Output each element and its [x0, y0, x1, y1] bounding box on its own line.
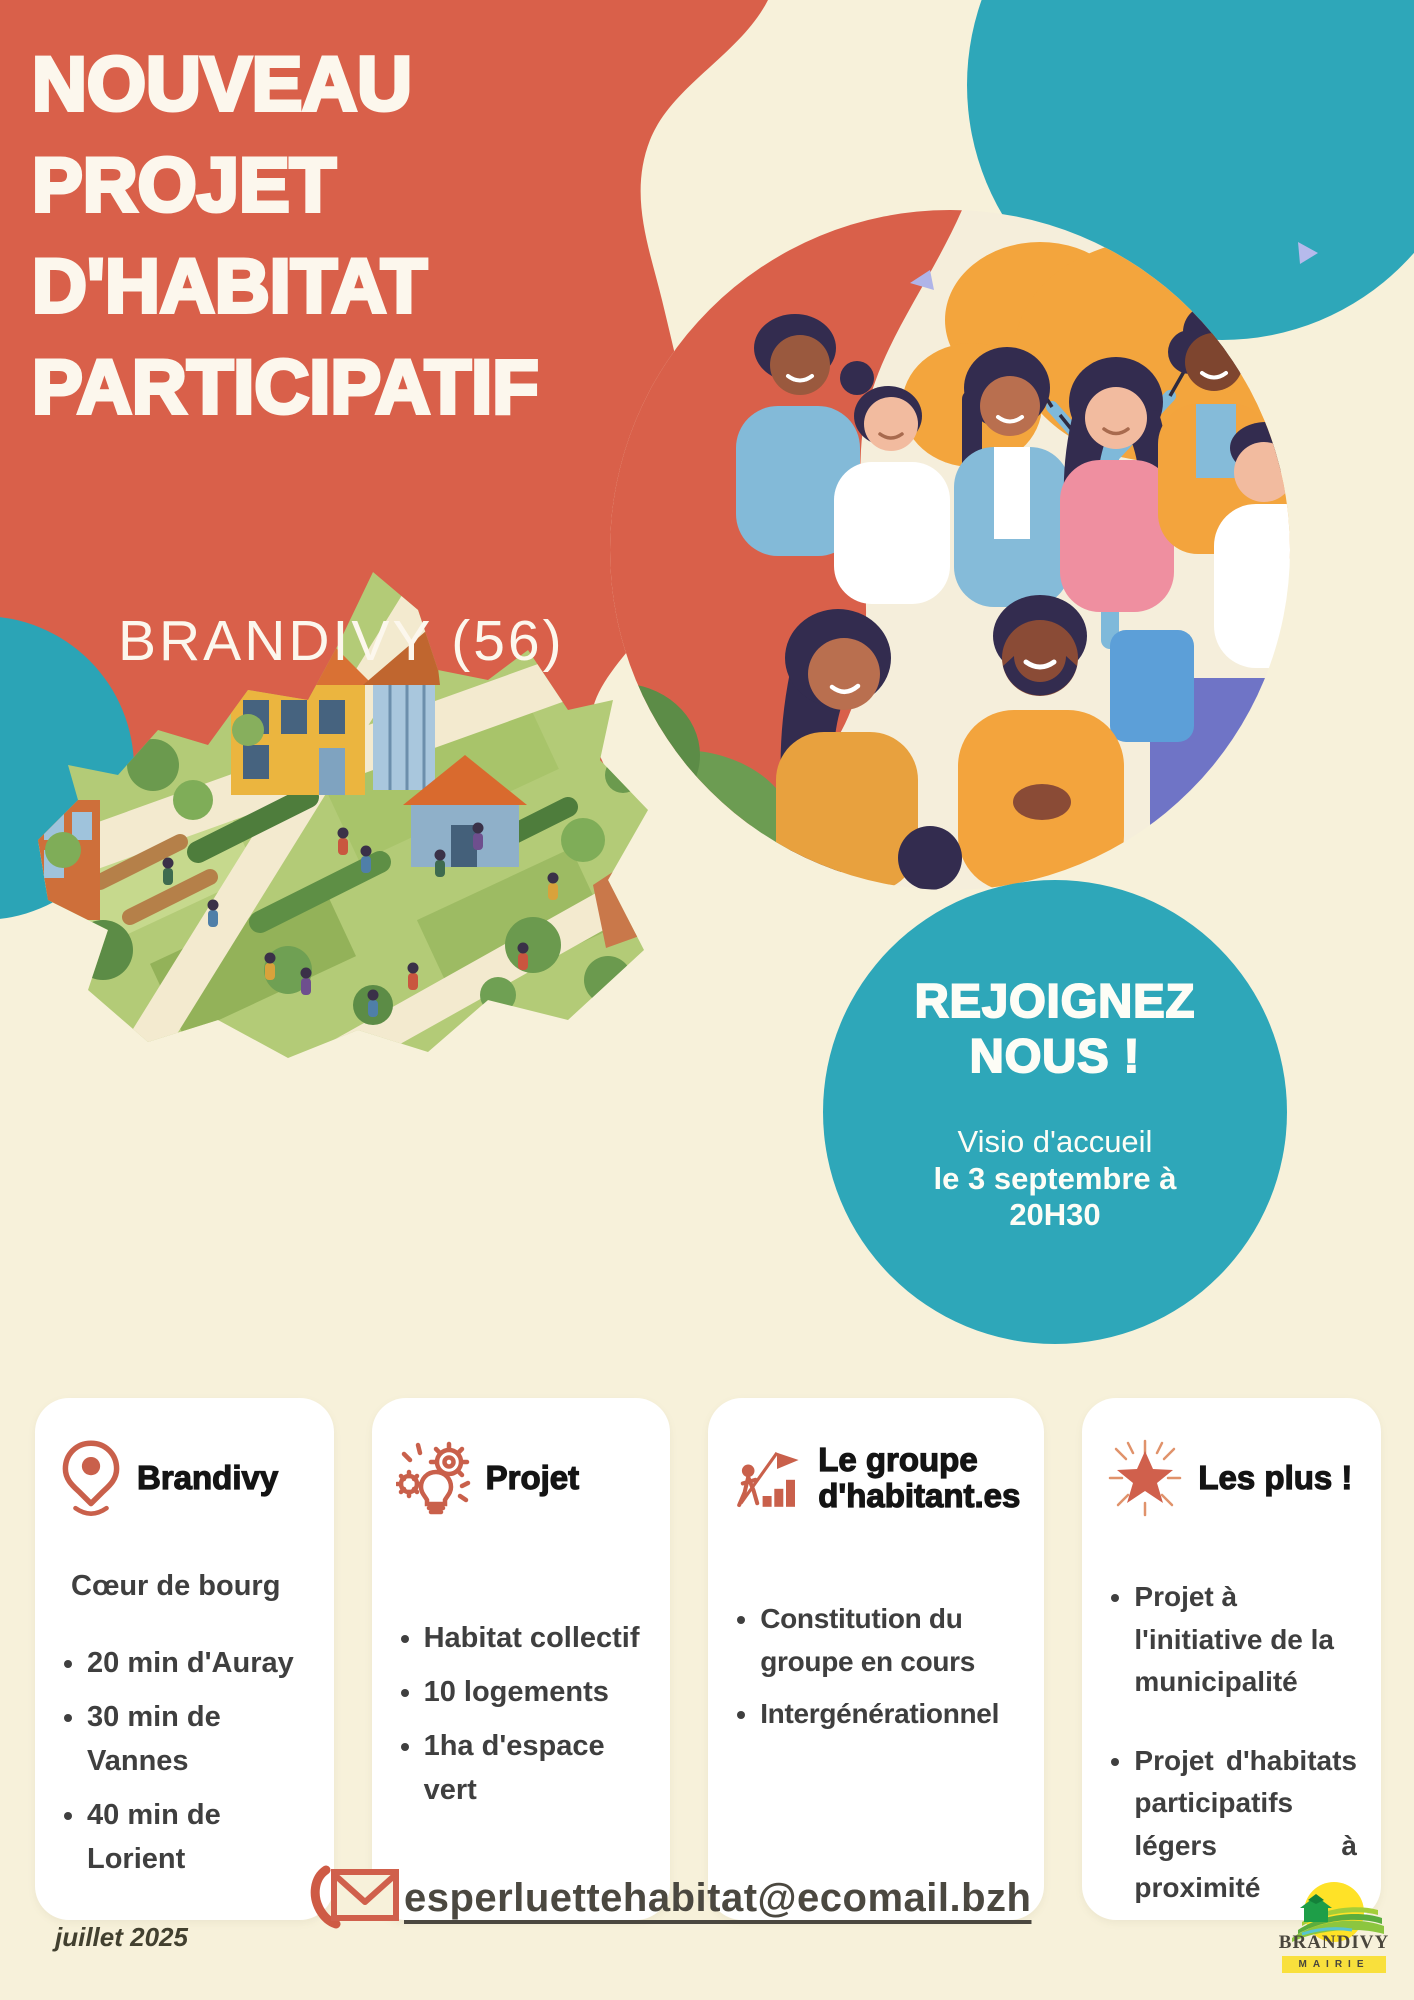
- bullet-item: Intergénérationnel: [760, 1693, 1020, 1736]
- card-title: Les plus !: [1198, 1460, 1352, 1496]
- person-pink-woman: [1060, 357, 1174, 612]
- card-groupe: Le groupe d'habitant.es Constitution du …: [708, 1398, 1044, 1920]
- card-bullet-list: Projet à l'initiative de la municipalité…: [1106, 1576, 1357, 1910]
- bullet-item: Constitution du groupe en cours: [760, 1598, 1020, 1683]
- card-title: Projet: [486, 1460, 580, 1496]
- card-title: Le groupe d'habitant.es: [818, 1442, 1020, 1515]
- card-bullet-list: Constitution du groupe en cours Intergén…: [732, 1598, 1020, 1736]
- star-icon: [1106, 1439, 1184, 1517]
- card-bullet-list: Habitat collectif 10 logements 1ha d'esp…: [396, 1616, 647, 1812]
- title-line: NOUVEAU: [32, 34, 539, 135]
- community-group-illustration: [610, 210, 1290, 890]
- poster: NOUVEAU PROJET D'HABITAT PARTICIPATIF BR…: [0, 0, 1414, 2000]
- bullet-item: 20 min d'Auray: [87, 1641, 310, 1685]
- card-les-plus: Les plus ! Projet à l'initiative de la m…: [1082, 1398, 1381, 1920]
- bullet-item: 40 min de Lorient: [87, 1793, 310, 1881]
- idea-gears-icon: [396, 1440, 472, 1516]
- title-line: D'HABITAT: [32, 236, 539, 337]
- join-title: REJOIGNEZ NOUS !: [823, 974, 1287, 1084]
- card-bullet-list: 20 min d'Auray 30 min de Vannes 40 min d…: [59, 1641, 310, 1881]
- card-intro: Cœur de bourg: [71, 1570, 310, 1603]
- poster-title: NOUVEAU PROJET D'HABITAT PARTICIPATIF: [32, 34, 539, 438]
- bullet-item: 1ha d'espace vert: [424, 1724, 647, 1812]
- contact-email-link[interactable]: esperluettehabitat@ecomail.bzh: [404, 1876, 1031, 1921]
- location-pin-icon: [59, 1437, 123, 1519]
- brandivy-mairie-logo: BRANDIVY MAIRIE: [1272, 1868, 1396, 1978]
- title-line: PARTICIPATIF: [32, 337, 539, 438]
- bullet-item: 30 min de Vannes: [87, 1695, 310, 1783]
- join-event-info: Visio d'accueil le 3 septembre à 20H30: [823, 1124, 1287, 1234]
- logo-name: BRANDIVY: [1272, 1932, 1396, 1954]
- contact-row: esperluettehabitat@ecomail.bzh: [300, 1856, 1031, 1941]
- card-projet: Projet Habitat collectif 10 logements 1h…: [372, 1398, 671, 1920]
- bullet-item: 10 logements: [424, 1670, 647, 1714]
- info-cards: Brandivy Cœur de bourg 20 min d'Auray 30…: [35, 1398, 1381, 1808]
- phone-mail-icon: [300, 1856, 400, 1941]
- join-us-circle: REJOIGNEZ NOUS ! Visio d'accueil le 3 se…: [823, 880, 1287, 1344]
- logo-sub: MAIRIE: [1282, 1956, 1386, 1973]
- date-note: juillet 2025: [55, 1922, 188, 1953]
- bullet-item: Habitat collectif: [424, 1616, 647, 1660]
- card-brandivy: Brandivy Cœur de bourg 20 min d'Auray 30…: [35, 1398, 334, 1920]
- location-text: BRANDIVY (56): [118, 608, 565, 674]
- growth-chart-icon: [732, 1444, 804, 1512]
- bullet-item: Projet à l'initiative de la municipalité: [1134, 1576, 1357, 1704]
- card-title: Brandivy: [137, 1460, 278, 1496]
- title-line: PROJET: [32, 135, 539, 236]
